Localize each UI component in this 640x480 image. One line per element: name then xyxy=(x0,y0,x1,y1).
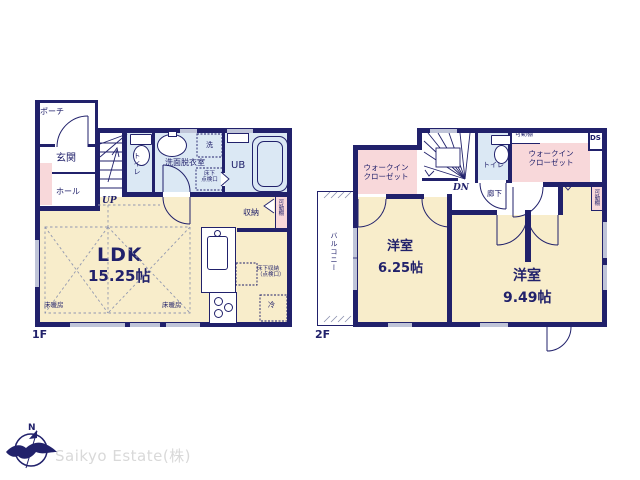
window xyxy=(353,228,357,290)
wall xyxy=(35,100,98,103)
wall xyxy=(122,133,127,192)
label-ldk: LDK xyxy=(97,245,143,267)
wall xyxy=(353,194,358,199)
wall xyxy=(506,180,512,183)
label-stairs-down: DN xyxy=(453,183,469,193)
label-entrance: 玄関 xyxy=(56,153,76,165)
label-ldk-size: 15.25帖 xyxy=(88,268,150,285)
wall xyxy=(525,210,531,262)
wall xyxy=(52,172,95,174)
label-porch: ポーチ xyxy=(40,107,64,116)
bathtub-inner-icon xyxy=(257,141,283,187)
label-shelf-2f-right: 可動棚 xyxy=(593,189,599,206)
label-shelf-1f: 可動棚 xyxy=(277,199,283,216)
sink-icon xyxy=(157,134,187,157)
label-floor-heating: 床暖房 xyxy=(44,302,64,309)
label-duct-space: DS xyxy=(590,134,601,142)
kitchen-sink-icon xyxy=(207,236,228,270)
compass-north-label: N xyxy=(28,423,36,433)
label-floor-heating: 床暖房 xyxy=(162,302,182,309)
wall xyxy=(417,128,422,150)
shower-counter-icon xyxy=(227,133,249,143)
stove-burner-icon xyxy=(214,297,223,306)
wall xyxy=(558,187,563,215)
label-toilet-2f: トイレ xyxy=(483,161,504,169)
label-stairs-up: UP xyxy=(102,196,117,206)
wall xyxy=(422,178,458,181)
wall xyxy=(353,145,422,150)
label-wic-right: ウォークイン クローゼット xyxy=(512,150,590,167)
label-room1: 洋室 xyxy=(387,240,413,255)
window xyxy=(180,129,197,133)
label-hallway: 廊下 xyxy=(487,190,502,199)
window xyxy=(166,323,200,327)
label-underfloor-storage: 床下収納 （点検口） xyxy=(257,266,285,279)
label-storage: 収納 xyxy=(243,208,259,217)
toilet-tank-icon xyxy=(130,134,152,145)
wall xyxy=(543,182,607,187)
wall xyxy=(152,133,155,192)
wall xyxy=(190,192,292,197)
label-toilet-1f: トイレ xyxy=(133,152,141,176)
label-bath-ub: UB xyxy=(231,160,245,172)
window xyxy=(388,323,412,327)
wall xyxy=(95,133,100,208)
stove-burner-icon xyxy=(224,303,233,312)
stairs-2f-icon xyxy=(424,133,470,179)
label-room2-size: 9.49帖 xyxy=(503,290,552,306)
window xyxy=(430,129,457,133)
label-washroom: 洗面脱衣室 xyxy=(165,158,205,167)
label-room2: 洋室 xyxy=(513,268,541,284)
wall xyxy=(386,194,424,199)
wall xyxy=(35,100,40,327)
entrance-shoe-cabinet xyxy=(40,163,52,205)
wall xyxy=(222,133,225,173)
compass-icon xyxy=(6,430,57,468)
label-hall: ホール xyxy=(56,187,80,196)
toilet-tank-icon xyxy=(491,135,511,145)
wall xyxy=(122,192,163,197)
room-youshitsu-625 xyxy=(358,197,447,322)
label-room1-size: 6.25帖 xyxy=(378,262,423,277)
label-washer: 洗 xyxy=(206,141,213,149)
company-logo-text: Saikyo Estate(株) xyxy=(55,445,191,466)
floorplan-canvas: ポーチ 玄関 ホール UP トイレ 洗面脱衣室 洗 床下 点検口 UB 収納 可… xyxy=(0,0,640,480)
faucet-icon xyxy=(168,131,177,137)
window xyxy=(603,222,607,258)
window xyxy=(480,323,508,327)
wall xyxy=(475,133,478,183)
wall xyxy=(95,100,98,131)
label-wic-left: ウォークイン クローゼット xyxy=(352,164,420,181)
window xyxy=(70,323,125,327)
window xyxy=(603,265,607,290)
label-underfloor-hatch: 床下 点検口 xyxy=(196,171,223,184)
wall xyxy=(237,228,292,232)
window xyxy=(130,323,160,327)
label-balcony: バルコニー xyxy=(330,232,338,272)
label-floor-1f: 1F xyxy=(32,329,47,342)
wall xyxy=(35,206,100,211)
kitchen-faucet-icon xyxy=(214,230,221,237)
window xyxy=(35,240,39,287)
label-floor-2f: 2F xyxy=(315,329,330,342)
label-shelf-2f-top: 可動棚 xyxy=(515,132,533,139)
stove-burner-icon xyxy=(214,309,223,318)
label-fridge: 冷 xyxy=(268,301,275,309)
wall xyxy=(452,210,497,215)
